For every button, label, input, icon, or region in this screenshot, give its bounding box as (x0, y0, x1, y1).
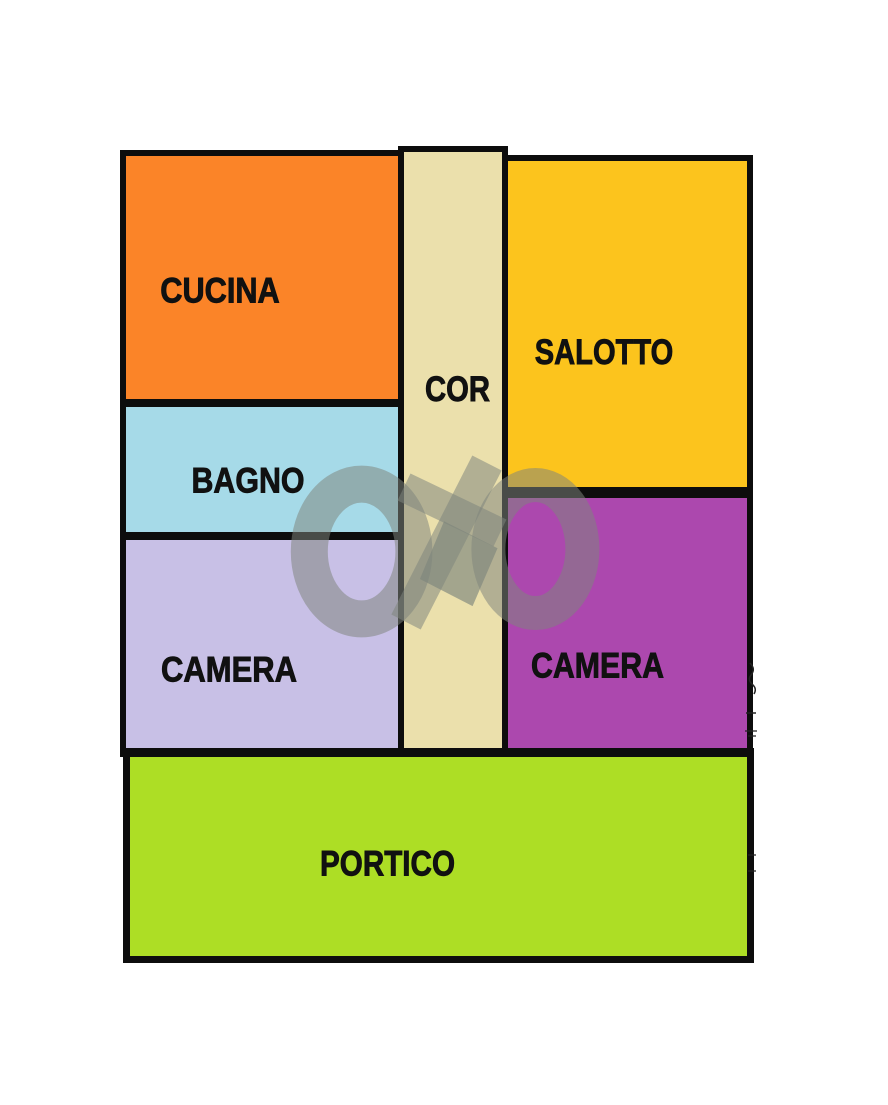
svg-text:COR: COR (425, 369, 490, 409)
svg-text:CUCINA: CUCINA (160, 271, 280, 311)
svg-text:CAMERA: CAMERA (161, 650, 297, 690)
svg-text:CAMERA: CAMERA (531, 646, 664, 686)
svg-text:BAGNO: BAGNO (192, 461, 305, 501)
svg-text:SALOTTO: SALOTTO (535, 332, 674, 372)
svg-text:PORTICO: PORTICO (320, 844, 455, 884)
